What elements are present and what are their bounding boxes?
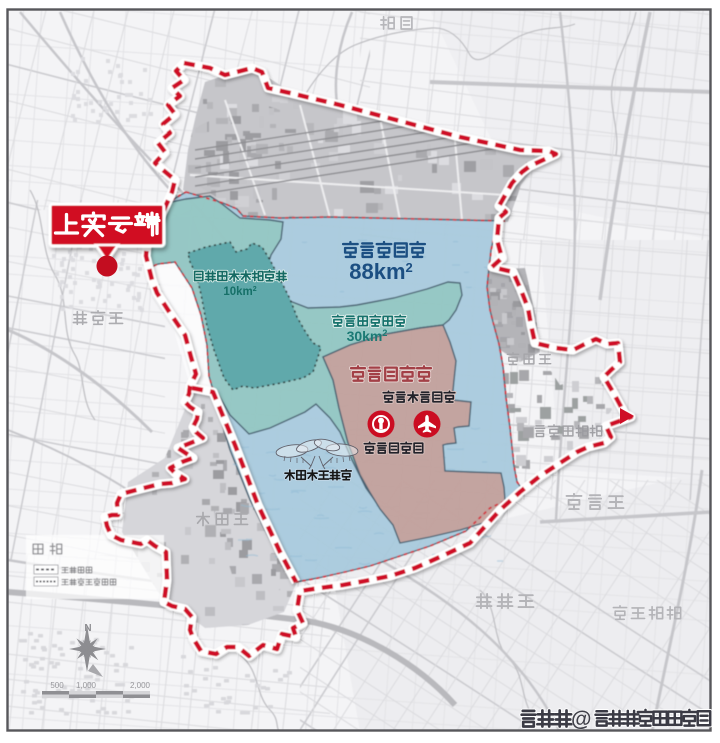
svg-text:1,000: 1,000 [76,681,97,690]
svg-text:@: @ [571,708,591,731]
svg-text:88km2: 88km2 [349,259,413,284]
svg-text:30km2: 30km2 [347,328,388,344]
svg-text:10km2: 10km2 [223,286,256,298]
svg-text:2,000: 2,000 [130,681,151,690]
svg-text:N: N [84,623,91,634]
svg-text:500: 500 [50,681,64,690]
